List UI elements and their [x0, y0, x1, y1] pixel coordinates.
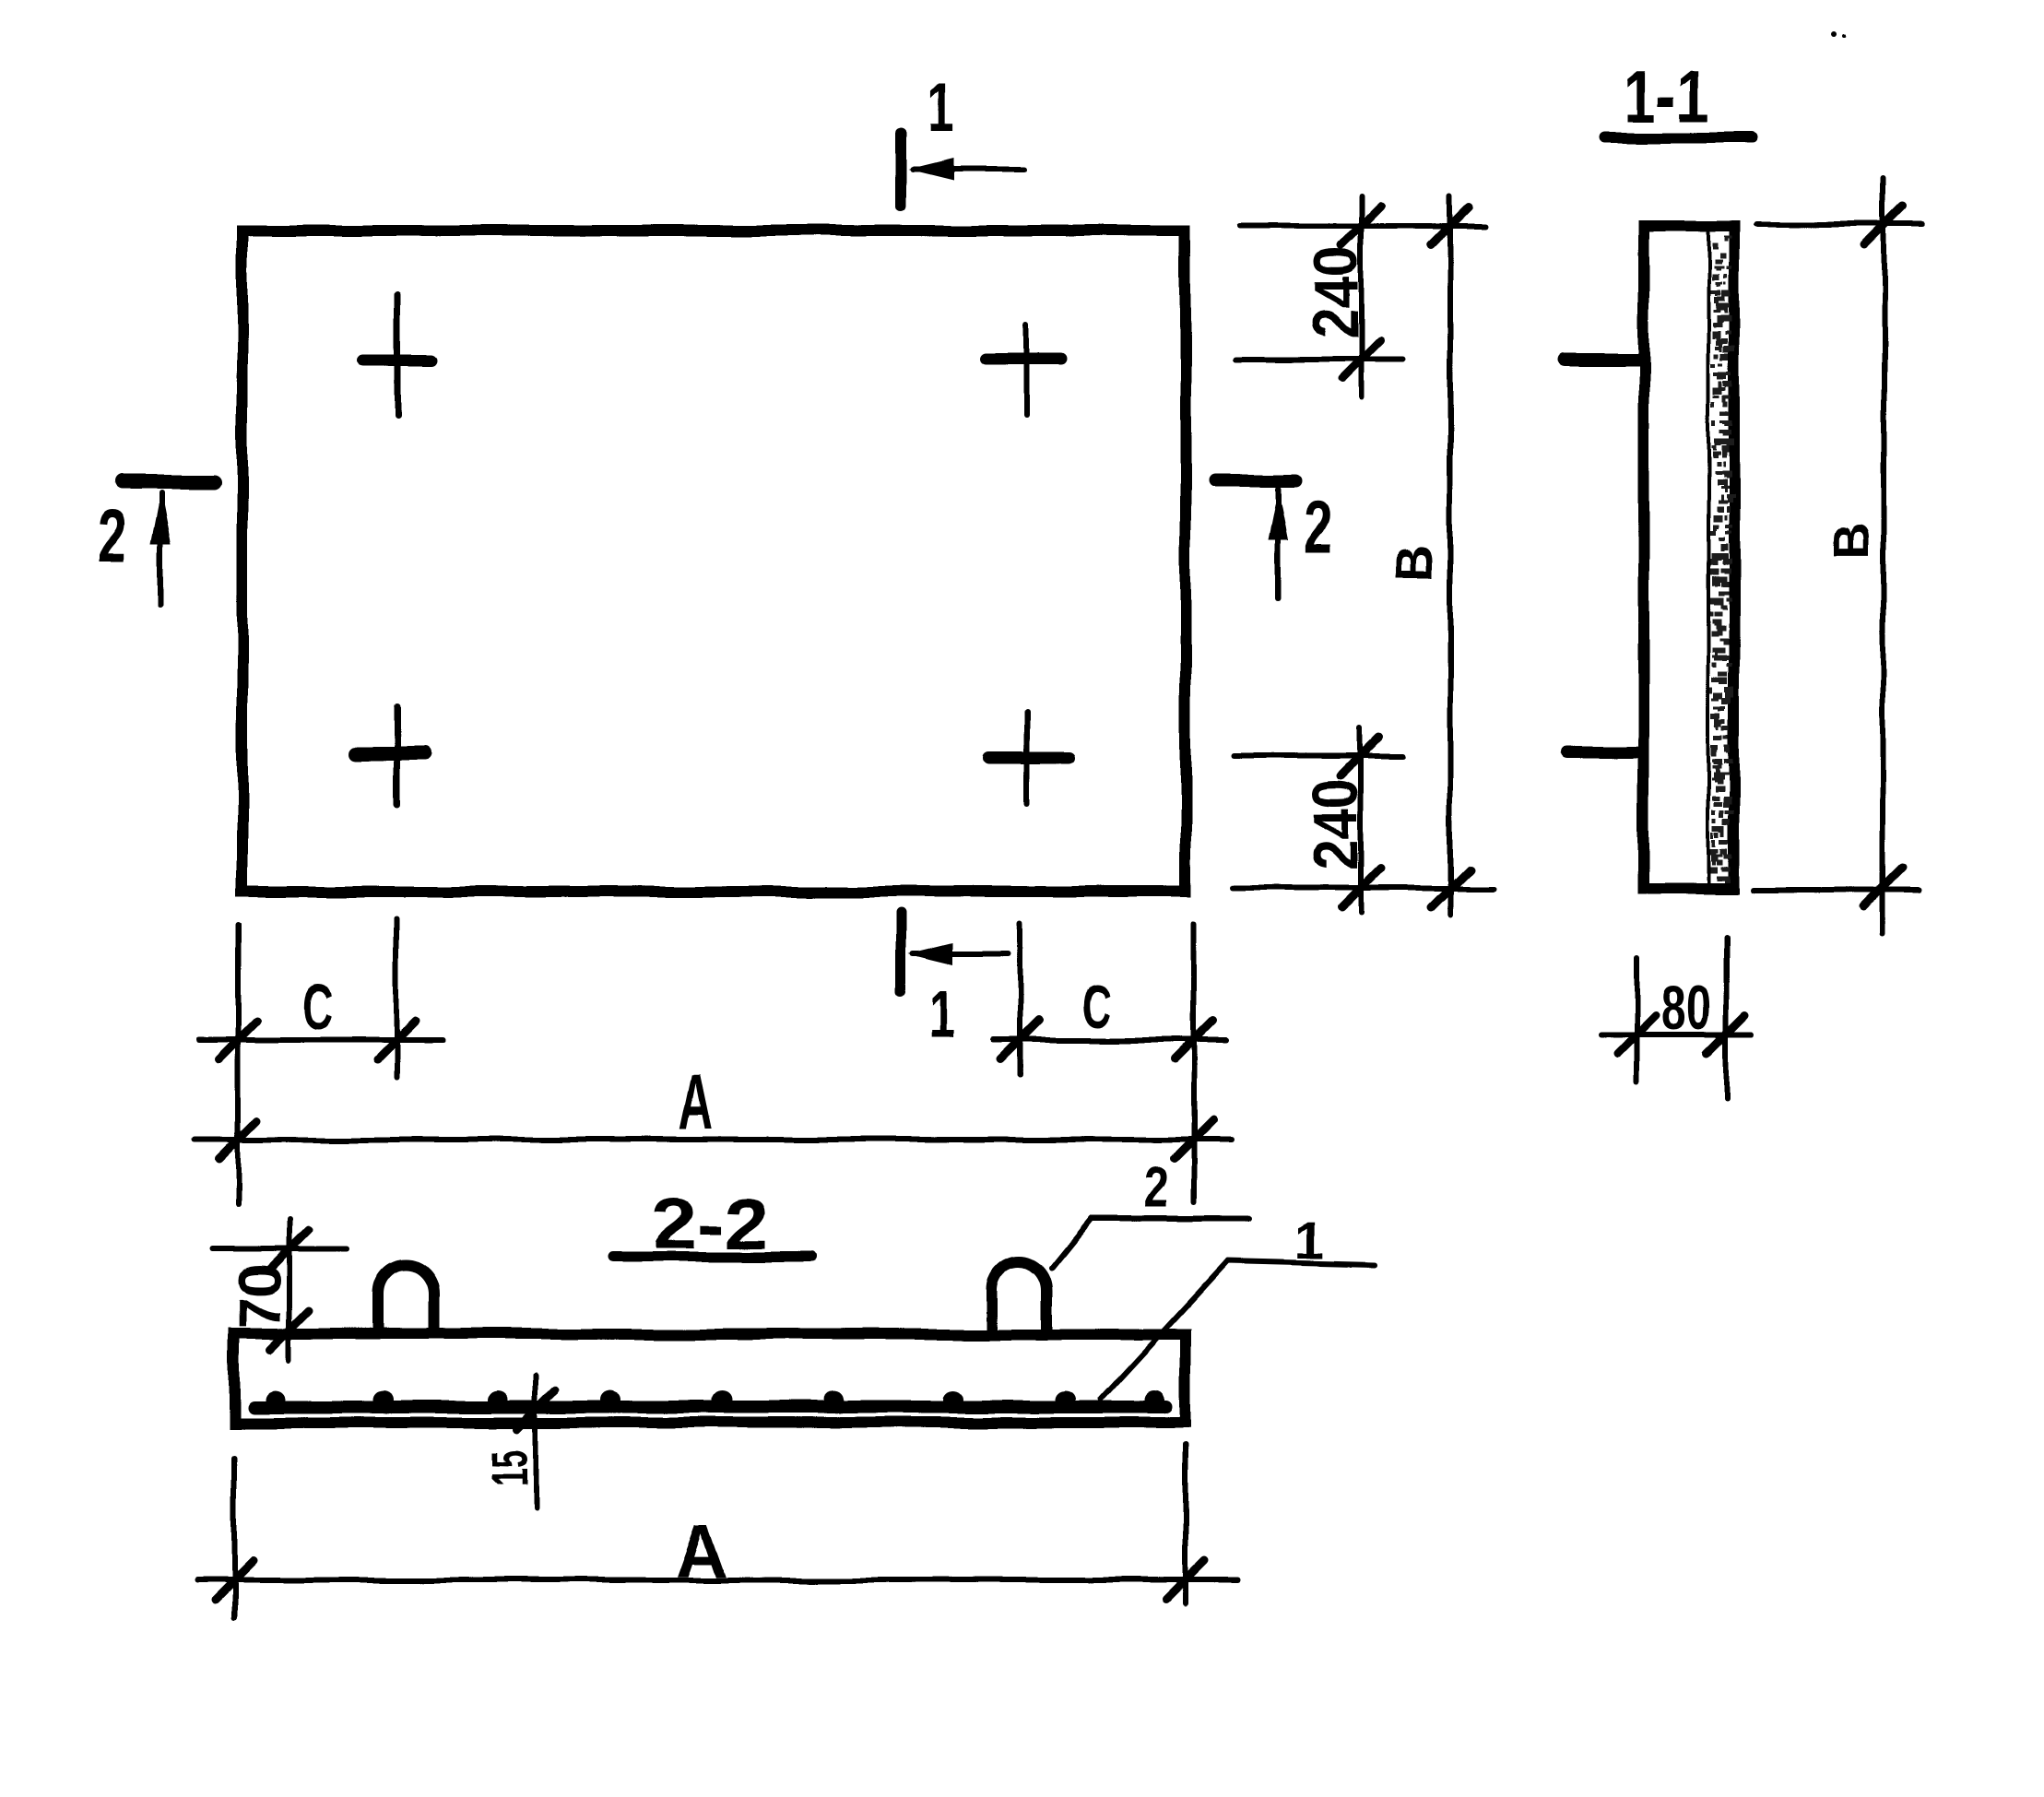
svg-text:1: 1 — [927, 69, 953, 148]
svg-text:A: A — [674, 1510, 727, 1594]
svg-text:1-1: 1-1 — [1625, 54, 1709, 136]
svg-text:240: 240 — [1301, 778, 1371, 870]
svg-text:2: 2 — [1144, 1157, 1169, 1221]
svg-text:2: 2 — [1304, 486, 1331, 568]
svg-text:15: 15 — [479, 1450, 538, 1487]
svg-text:70: 70 — [226, 1263, 293, 1330]
svg-text:1: 1 — [929, 977, 955, 1052]
svg-text:240: 240 — [1301, 246, 1371, 338]
svg-text:C: C — [302, 973, 332, 1043]
svg-text:В: В — [1386, 545, 1444, 582]
svg-text:1: 1 — [1295, 1212, 1324, 1269]
svg-text:C: C — [1081, 971, 1111, 1041]
svg-text:80: 80 — [1662, 973, 1710, 1043]
svg-text:2: 2 — [97, 495, 126, 579]
svg-text:A: A — [679, 1059, 713, 1147]
svg-text:В: В — [1824, 524, 1879, 560]
